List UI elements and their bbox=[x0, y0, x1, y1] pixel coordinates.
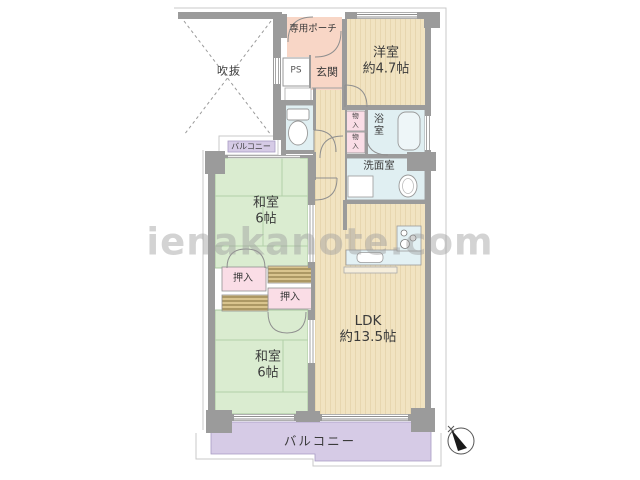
closet-striped-a bbox=[268, 266, 313, 283]
balcony-label-side: バルコニー bbox=[231, 142, 271, 152]
washroom-cabinet bbox=[348, 176, 373, 197]
floorplan-page: 吹抜 専用ポーチ PS 玄関 洋室 約4.7帖 物入 物入 浴室 洗面室 和室 … bbox=[0, 0, 640, 480]
balcony-label-main: バルコニー bbox=[284, 434, 356, 449]
room-label-bathroom: 浴室 bbox=[373, 114, 385, 138]
closet-striped-b bbox=[222, 295, 268, 311]
room-label-ldk-name: LDK bbox=[339, 313, 396, 329]
closet-label-south: 押入 bbox=[280, 292, 300, 304]
room-hall-area bbox=[313, 90, 345, 202]
bathtub-fixture bbox=[398, 112, 420, 150]
room-label-japanese-south-name: 和室 bbox=[255, 349, 281, 365]
room-label-pipe-space: PS bbox=[290, 66, 301, 77]
room-label-porch: 専用ポーチ bbox=[289, 23, 337, 34]
watermark-text: ienakanote.com bbox=[146, 221, 493, 264]
room-label-ldk-size: 約13.5帖 bbox=[339, 329, 396, 345]
room-label-japanese-north-name: 和室 bbox=[253, 195, 279, 211]
closet-label-north: 押入 bbox=[233, 273, 253, 285]
kitchen-cupboard bbox=[344, 267, 397, 273]
room-label-western-name: 洋室 bbox=[363, 45, 410, 61]
room-label-western: 洋室 約4.7帖 bbox=[363, 45, 410, 76]
toilet-bowl bbox=[289, 121, 308, 145]
room-label-ldk: LDK 約13.5帖 bbox=[339, 313, 396, 345]
room-label-storage-upper: 物入 bbox=[352, 112, 360, 130]
room-label-japanese-south-size: 6帖 bbox=[255, 365, 281, 381]
room-label-storage-lower: 物入 bbox=[352, 133, 360, 151]
void-cross bbox=[184, 21, 271, 135]
room-label-void: 吹抜 bbox=[217, 64, 241, 77]
room-label-western-size: 約4.7帖 bbox=[363, 61, 410, 77]
compass-icon bbox=[448, 426, 474, 454]
room-label-entrance: 玄関 bbox=[316, 65, 338, 78]
room-label-washroom: 洗面室 bbox=[363, 160, 395, 173]
room-label-japanese-south: 和室 6帖 bbox=[255, 349, 281, 380]
toilet-tank bbox=[287, 109, 309, 120]
